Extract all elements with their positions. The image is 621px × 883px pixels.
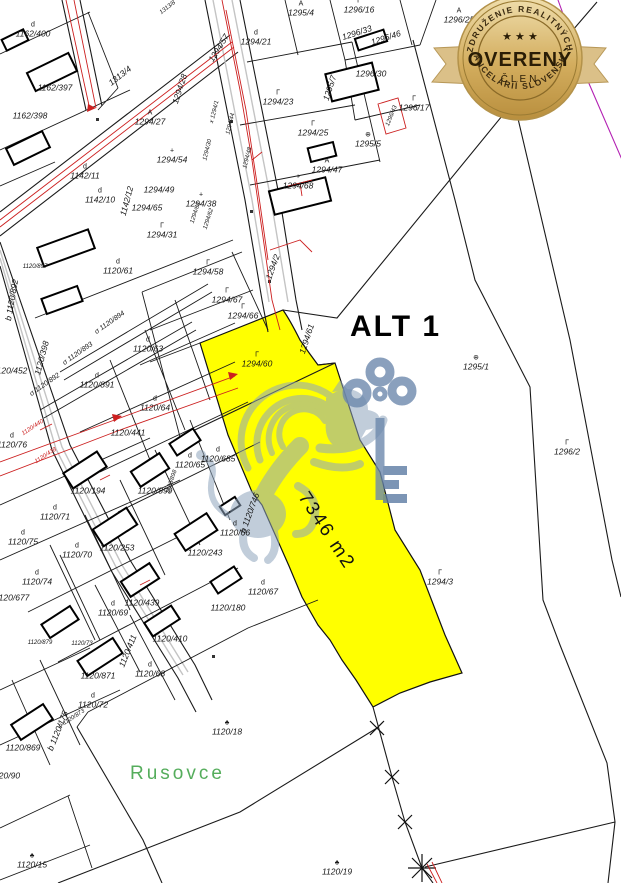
key-teeth-e: [383, 466, 407, 503]
district-name-label: Rusovce: [130, 763, 225, 785]
badge-subtitle: ČLEN: [501, 72, 540, 85]
cadastral-map-page: d1162/4001162/3971162/3981313/41313/8A12…: [0, 0, 621, 883]
certified-member-badge: ZDRUŽENIE REALITNÝCH KANCELÁRIÍ SLOVENSK…: [420, 0, 620, 144]
badge-title: OVERENÝ: [468, 47, 573, 71]
survey-x-markers: [370, 721, 436, 882]
badge-stars-icon: ★ ★ ★: [502, 31, 538, 43]
alternative-label: ALT 1: [350, 310, 441, 344]
